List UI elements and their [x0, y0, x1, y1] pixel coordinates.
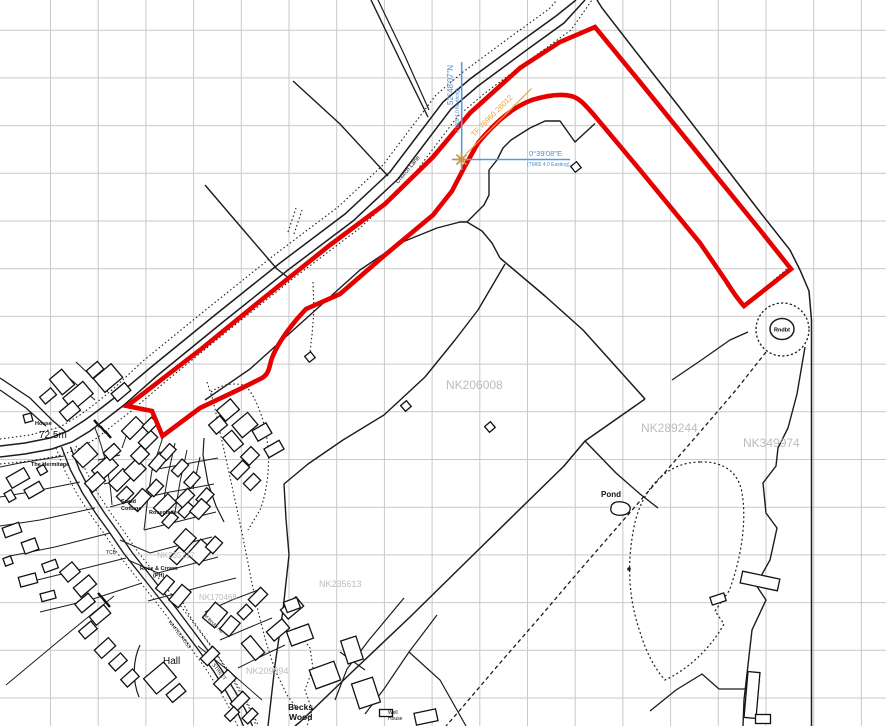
svg-text:Becks: Becks — [288, 702, 313, 712]
svg-text:Roseglade: Roseglade — [149, 510, 177, 516]
svg-text:NK170468: NK170468 — [199, 593, 237, 602]
svg-text:Wood: Wood — [289, 712, 312, 722]
svg-text:Hall: Hall — [163, 656, 180, 667]
svg-text:House: House — [388, 716, 403, 722]
svg-text:Rose & Crown: Rose & Crown — [140, 566, 178, 572]
svg-text:Snaid: Snaid — [121, 499, 136, 505]
svg-text:TCB: TCB — [106, 550, 117, 556]
svg-text:NK349974: NK349974 — [743, 436, 800, 450]
svg-text:0°39'08"E: 0°39'08"E — [529, 149, 562, 158]
svg-text:NK209994: NK209994 — [246, 666, 289, 676]
svg-text:Pond: Pond — [601, 490, 621, 499]
svg-text:72.5m: 72.5m — [39, 430, 67, 441]
svg-text:The Hermitage: The Hermitage — [31, 462, 69, 468]
svg-text:Rndbt: Rndbt — [774, 328, 790, 334]
svg-text:(PH): (PH) — [153, 573, 164, 579]
svg-text:House: House — [35, 421, 52, 427]
svg-text:NK235613: NK235613 — [319, 579, 362, 589]
svg-text:(TM65 4.0 Northing): (TM65 4.0 Northing) — [455, 88, 461, 133]
svg-text:52°48'07"N: 52°48'07"N — [446, 65, 455, 105]
svg-text:NK289244: NK289244 — [641, 421, 698, 435]
svg-text:Cottage: Cottage — [121, 506, 141, 512]
svg-text:NK206008: NK206008 — [446, 378, 503, 392]
svg-text:(TM65 4.0 Easting): (TM65 4.0 Easting) — [527, 162, 570, 168]
svg-text:NK235217: NK235217 — [157, 551, 195, 560]
